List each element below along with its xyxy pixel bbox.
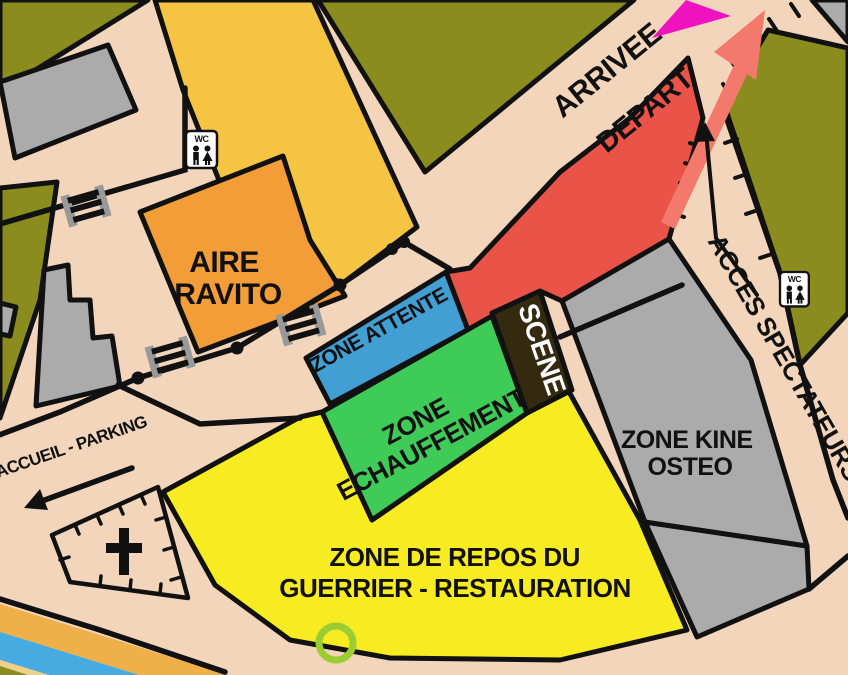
map-canvas: WC WC ARRIVEE DEPART ACCES SPECTATEURS A… [0,0,848,675]
wc-icon-label: WC [195,134,210,144]
label-aire-ravito-line1: AIRE [189,246,259,279]
label-zone-repos-line2: GUERRIER - RESTAURATION [279,573,631,603]
label-zone-kine-line2: OSTEO [647,453,732,481]
label-zone-repos: ZONE DE REPOS DU GUERRIER - RESTAURATION [279,542,631,603]
label-aire-ravito: AIRE RAVITO [174,246,282,311]
wc-icon: WC [780,272,809,306]
label-zone-kine-line1: ZONE KINE [621,426,753,454]
wc-icon-label: WC [788,274,801,284]
event-site-map: WC WC ARRIVEE DEPART ACCES SPECTATEURS A… [0,0,848,675]
label-zone-repos-line1: ZONE DE REPOS DU [329,542,580,572]
label-aire-ravito-line2: RAVITO [174,278,282,311]
wc-icon: WC [186,131,217,168]
